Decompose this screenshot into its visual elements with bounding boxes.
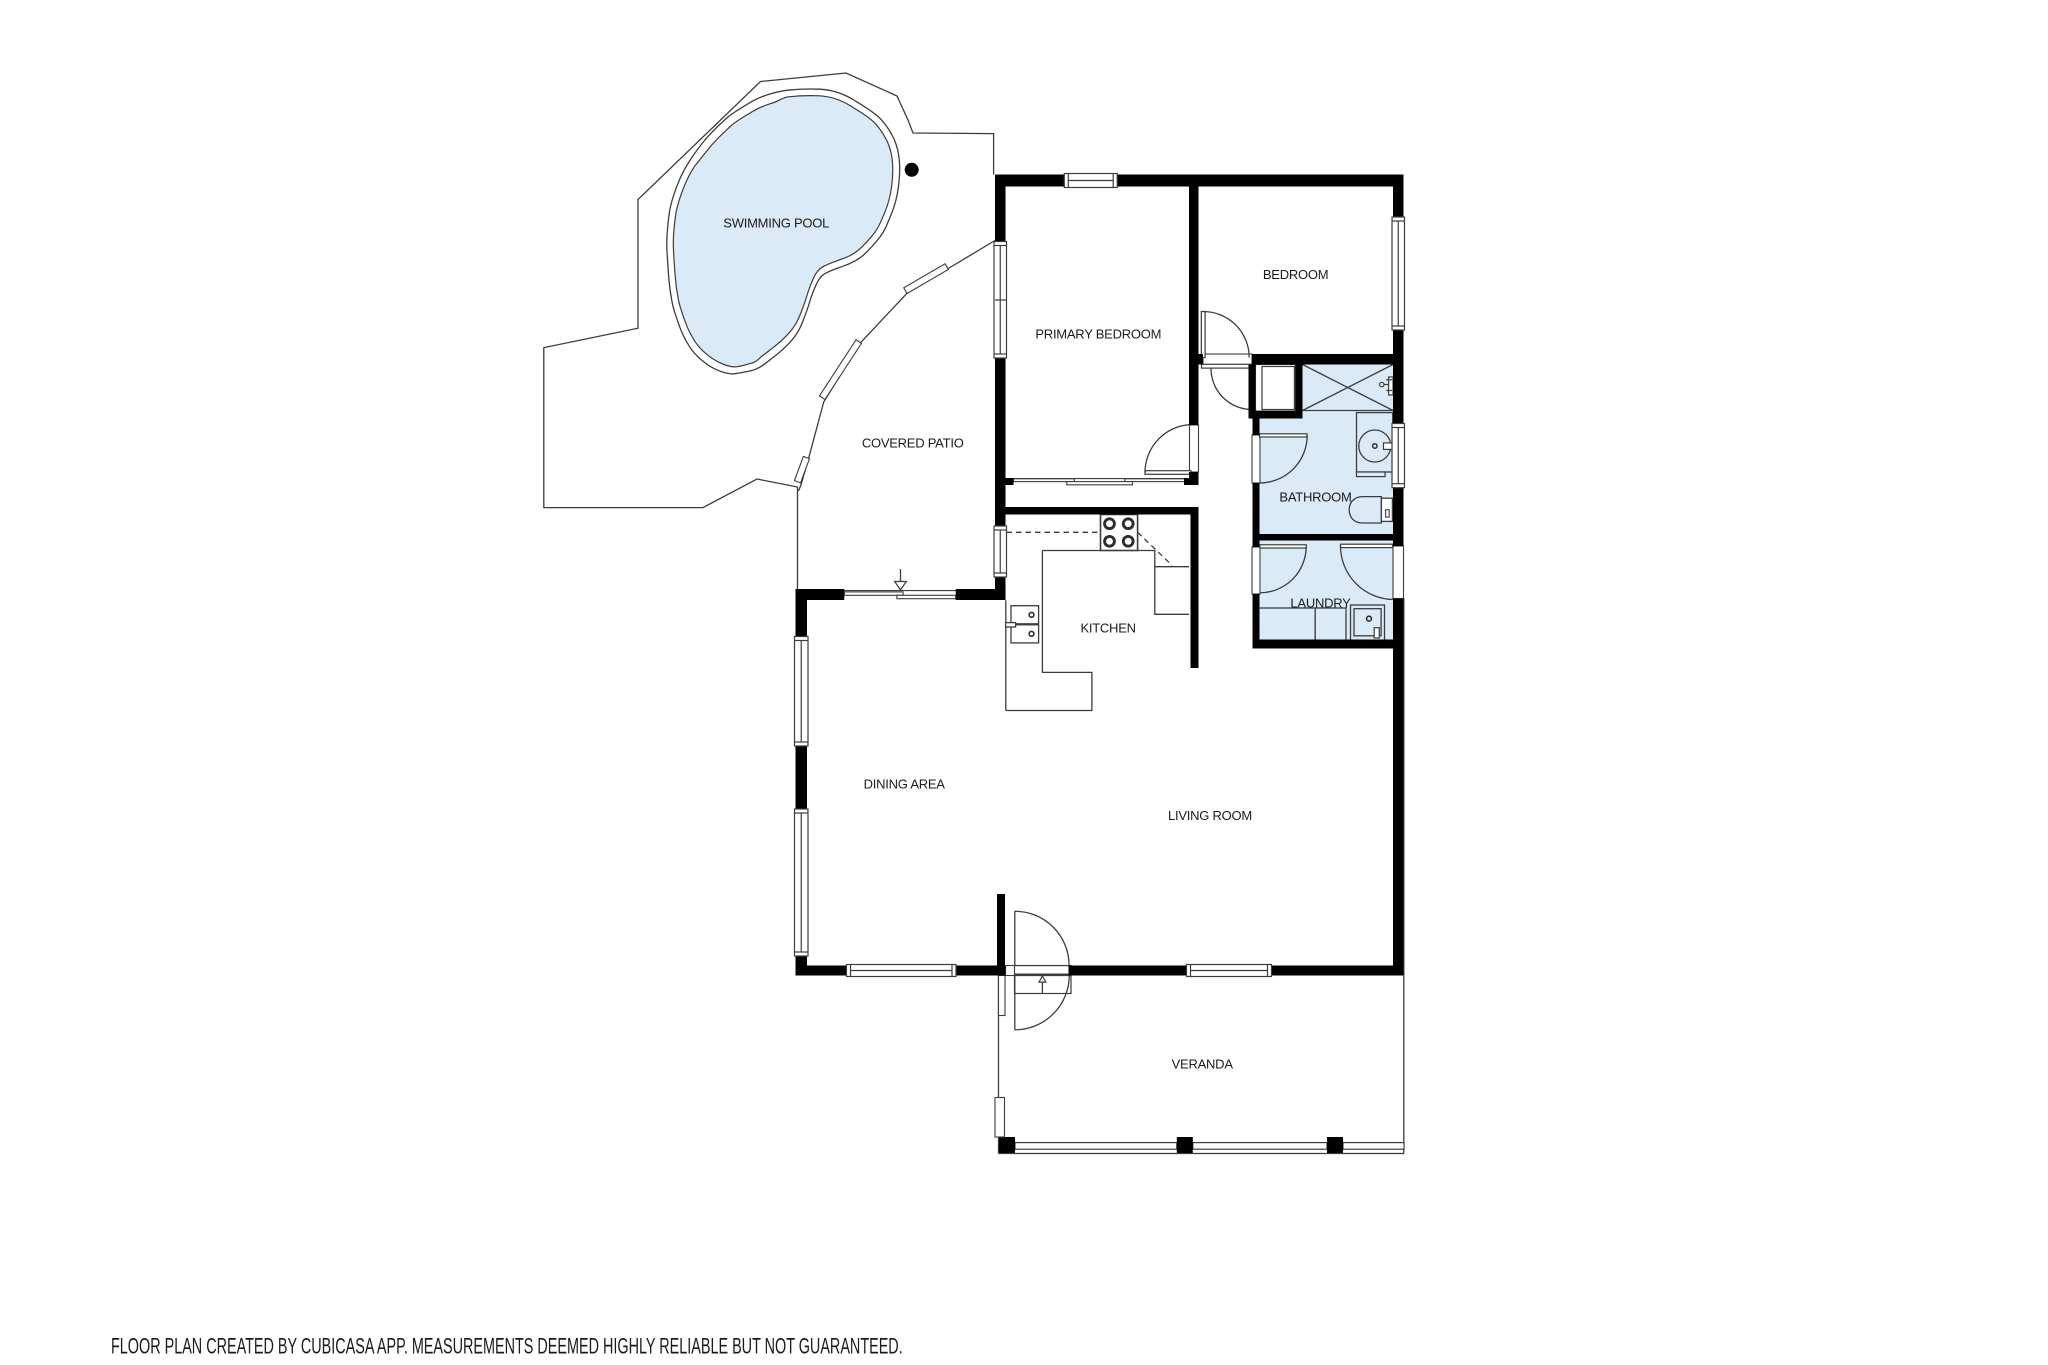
svg-text:DINING AREA: DINING AREA: [864, 776, 946, 791]
svg-text:PRIMARY BEDROOM: PRIMARY BEDROOM: [1035, 327, 1161, 342]
svg-text:VERANDA: VERANDA: [1172, 1057, 1234, 1072]
svg-text:COVERED PATIO: COVERED PATIO: [862, 436, 964, 451]
svg-text:FLOOR PLAN CREATED BY CUBICASA: FLOOR PLAN CREATED BY CUBICASA APP. MEAS…: [111, 1333, 903, 1358]
svg-text:LAUNDRY: LAUNDRY: [1290, 595, 1351, 610]
svg-text:BATHROOM: BATHROOM: [1279, 490, 1351, 505]
svg-text:LIVING ROOM: LIVING ROOM: [1168, 808, 1252, 823]
svg-text:BEDROOM: BEDROOM: [1263, 267, 1328, 282]
svg-text:SWIMMING POOL: SWIMMING POOL: [723, 216, 829, 231]
svg-text:KITCHEN: KITCHEN: [1080, 620, 1135, 635]
